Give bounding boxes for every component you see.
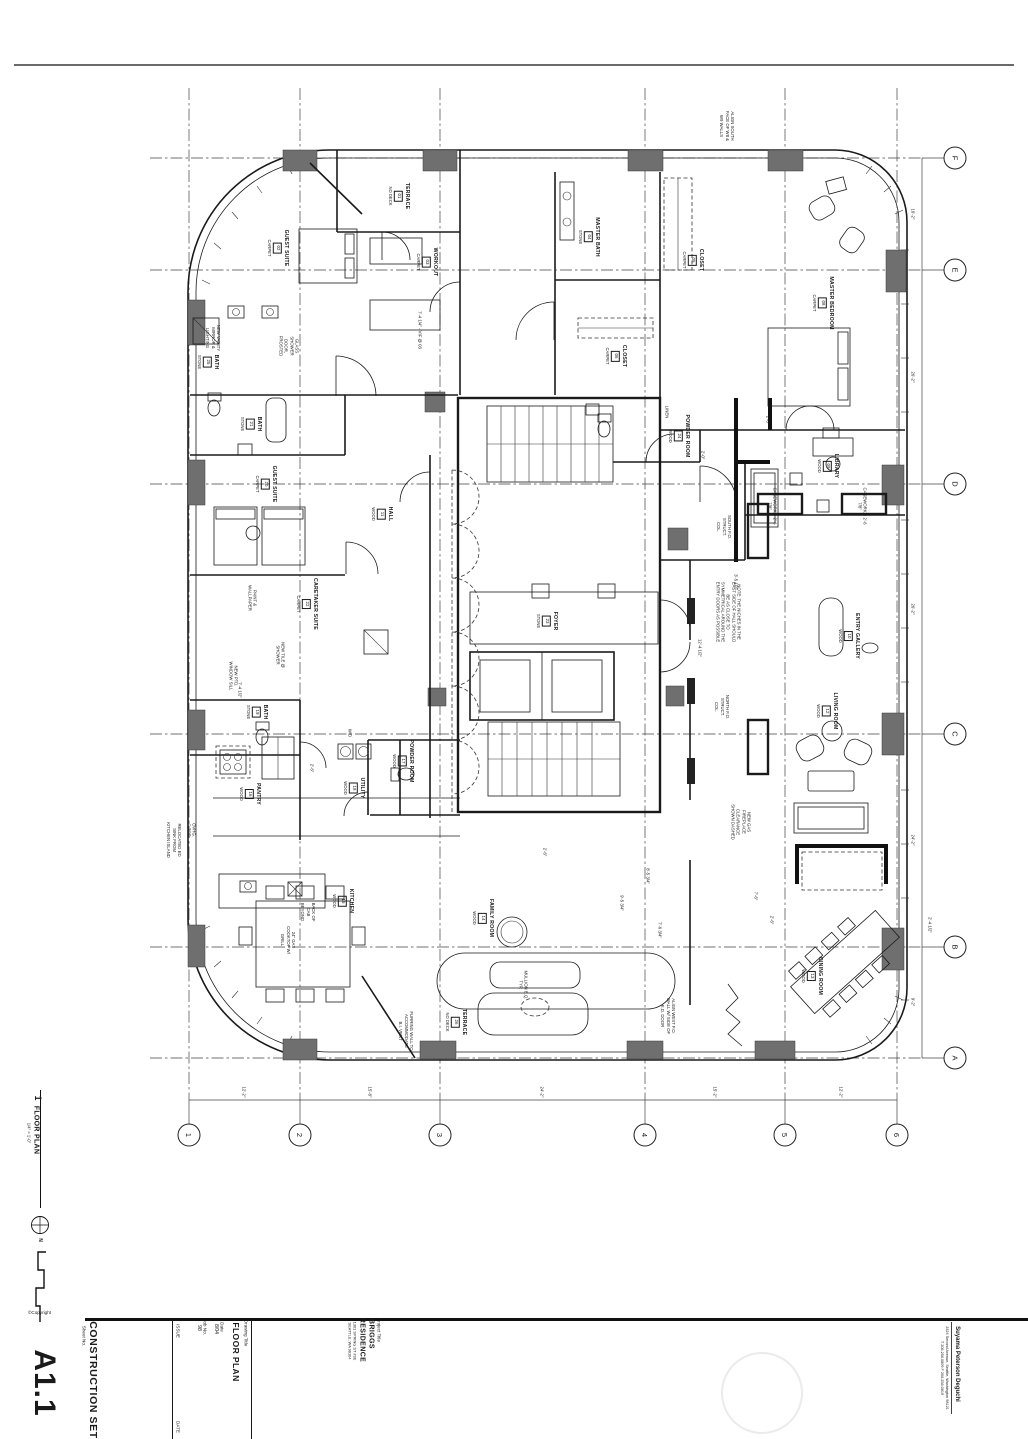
room-name: FOYER (552, 612, 558, 631)
room-label: DINING ROOM 13 WOOD (801, 957, 823, 995)
room-label: UTILITY 18 WOOD (343, 778, 365, 799)
room-finish: NO DECK (445, 1012, 450, 1031)
room-finish: WOOD (816, 704, 821, 718)
room-name: GUEST SUITE (283, 230, 289, 267)
dimension-text: 9'-2" (911, 998, 916, 1007)
set-title: CONSTRUCTION SET (87, 1321, 99, 1439)
plan-note: NORTH F.O. STRUCT. COL. (714, 693, 730, 721)
room-name: CARETAKER SUITE (312, 578, 318, 630)
copyright: ©Copyright (28, 1310, 51, 1315)
room-tag: 14 (478, 913, 487, 924)
grid-bubble-label: C (950, 731, 959, 736)
room-finish: NO DECK (388, 186, 393, 205)
room-finish: CARPET (812, 294, 817, 311)
room-tag: 12 (822, 706, 831, 717)
grid-bubble: D (944, 473, 967, 496)
room-tag: 13 (807, 971, 816, 982)
room-tag: 21 (246, 419, 255, 430)
room-tag: 24 (674, 431, 683, 442)
room-finish: WOOD (801, 969, 806, 983)
grid-bubble-label: D (950, 481, 959, 486)
room-label: MASTER BEDROOM 08 CARPET (812, 276, 834, 329)
plan-note: CASEWORK = 2'-6 7/8" (767, 484, 778, 528)
dimension-text: 12'-2" (242, 1087, 247, 1098)
watermark-circle (722, 1353, 802, 1433)
room-label: TERRACE 26 NO DECK (445, 1009, 467, 1035)
plan-scale: 1/4" = 1'-0" (27, 1123, 32, 1143)
room-finish: WOOD (392, 754, 397, 768)
room-label: WORKOUT 03 CARPET (416, 248, 438, 277)
dimension-text: 16'-2" (911, 209, 916, 220)
room-finish: STONE (578, 230, 583, 244)
room-finish: CARPET (296, 596, 301, 613)
room-finish: CARPET (267, 239, 272, 256)
room-finish: STONE (240, 417, 245, 431)
room-label: MASTER BATH 04 STONE (578, 217, 600, 257)
room-finish: WOOD (343, 781, 348, 795)
grid-bubble-label: F (951, 156, 960, 161)
grid-bubble-label: B (950, 944, 959, 949)
plan-note: OVHG. C-TOP (186, 821, 197, 839)
room-label: KITCHEN 15 WOOD (332, 889, 354, 913)
project-title-label: Project Title (377, 1318, 382, 1342)
room-tag: 25 (203, 357, 212, 368)
dimension-text: 26'-2" (911, 604, 916, 615)
dimension-text: 2'-4 1/2" (928, 917, 933, 933)
room-finish: WOOD (838, 629, 843, 643)
dimension-text: 26'-2" (911, 372, 916, 383)
room-tag: 16 (245, 789, 254, 800)
grid-bubble-label: 1 (184, 1133, 193, 1137)
plan-note: NEW GAS FIREPLACE CLEARANCE SHOWN DASHED (730, 802, 751, 842)
grid-bubble: B (944, 936, 967, 959)
room-name: BATH (262, 705, 268, 720)
plan-note: MULLION E.Q. TYP. (518, 970, 529, 1000)
plan-title-text: FLOOR PLAN (33, 1106, 40, 1155)
room-tag: 05 (688, 255, 697, 266)
room-finish: WOOD (472, 911, 477, 925)
room-tag: 02 (273, 243, 282, 254)
room-name: FAMILY ROOM (488, 899, 494, 937)
room-label: TERRACE 01 NO DECK (388, 183, 410, 209)
room-tag: 19 (252, 707, 261, 718)
dimension-text: 2'-0" (701, 451, 706, 460)
room-name: TERRACE (404, 183, 410, 209)
room-name: LIVING ROOM (832, 692, 838, 729)
grid-bubble: C (944, 723, 967, 746)
dimension-text: 12'-4 1/2" (698, 639, 703, 657)
plan-note: RELOCATED ED SINK FROM KITCHEN ISLAND (166, 822, 182, 858)
room-name: BATH (213, 355, 219, 370)
room-tag: 20 (261, 479, 270, 490)
room-tag: 22 (302, 599, 311, 610)
dimension-text: 24'-2" (911, 835, 916, 846)
room-tag: 01 (394, 191, 403, 202)
room-name: CLOSET (698, 249, 704, 271)
room-label: LIVING ROOM 12 WOOD (816, 692, 838, 729)
grid-bubble-label: A (950, 1055, 959, 1060)
floor-plan-linework (0, 0, 1028, 1439)
room-tag: 08 (818, 298, 827, 309)
room-finish: CARPET (416, 254, 421, 271)
plan-note: W/D (347, 726, 352, 740)
dimension-text: 7'-4 1/4" - VIF @ 03 (418, 311, 423, 349)
grid-bubble: 1 (178, 1124, 201, 1147)
room-tag: 26 (451, 1017, 460, 1028)
job-value: 98 (196, 1325, 202, 1331)
plan-note: 24" GAS COOKTOP W/ GRILL (280, 925, 296, 955)
room-tag: 23 (542, 616, 551, 627)
dimension-text: 7'-4 1/2" (238, 682, 243, 698)
room-tag: 04 (584, 232, 593, 243)
drawing-sheet: TERRACE 01 NO DECK GUEST SUITE 02 CARPET… (0, 0, 1028, 1439)
plan-note: PAINT & WALLPAPER (247, 583, 258, 613)
room-name: LIBRARY (833, 454, 839, 478)
room-tag: 15 (338, 896, 347, 907)
plan-note: NEW VANITY MIRROR & LIGHTING (205, 320, 221, 356)
room-name: MASTER BEDROOM (828, 276, 834, 329)
dimension-text: 15'-2" (713, 1087, 718, 1098)
room-tag: 03 (422, 257, 431, 268)
date-column-label: DATE (176, 1421, 181, 1433)
room-tag: 17 (398, 756, 407, 767)
room-label: CLOSET 05 CARPET (682, 249, 704, 271)
dimension-text: 12'-2" (839, 1087, 844, 1098)
room-label: POWDER ROOM 17 WOOD (392, 739, 414, 782)
project-address-2: SEATTLE, WA 98104 (348, 1323, 353, 1360)
dimension-text: 2'-6" (766, 416, 771, 425)
room-label: CLOSET 06 CARPET (605, 345, 627, 367)
room-finish: STONE (536, 614, 541, 628)
plan-note: CASEWORK = 2'-6 7/8" (857, 484, 868, 528)
project-address-1: 1301 SPRING ST #3E (353, 1322, 358, 1361)
grid-bubble-label: 6 (892, 1133, 901, 1137)
project-name-1: BRIGGS (368, 1319, 375, 1349)
room-tag: 11 (377, 509, 386, 520)
job-label: Job No. (203, 1319, 208, 1335)
room-label: PANTRY 16 WOOD (239, 783, 261, 805)
grid-bubble-label: 3 (435, 1133, 444, 1137)
firm-name: Suyama Peterson Deguchi (954, 1326, 960, 1402)
title-block-divider (251, 1320, 252, 1439)
room-tag: 09 (823, 461, 832, 472)
firm-phone: T 206.256.0809 F 206.256.0819 (940, 1341, 944, 1395)
room-label: BATH 19 STONE (246, 705, 268, 720)
room-name: WORKOUT (432, 248, 438, 277)
grid-bubble-label: 5 (780, 1133, 789, 1137)
plan-note: BACK OF CAB BEYOND (300, 899, 316, 925)
furniture (214, 177, 908, 1035)
room-finish: CARPET (255, 475, 260, 492)
room-finish: WOOD (239, 787, 244, 801)
room-label: FAMILY ROOM 14 WOOD (472, 899, 494, 937)
plan-note: ALIGN SOUTH FACE OF W8 & W9 WALLS (719, 109, 735, 143)
grid-bubble-label: E (950, 267, 959, 272)
room-finish: WOOD (817, 459, 822, 473)
issue-label: ISSUE (176, 1324, 181, 1338)
date-field-label: Date (220, 1322, 225, 1332)
room-finish: CARPET (605, 348, 610, 365)
plan-note: GLASS SHOWER DOOR, FROSTED (278, 329, 299, 363)
room-label: ENTRY GALLERY 10 WOOD (838, 613, 860, 659)
dimension-text: 7'-6" (754, 892, 759, 901)
date-value: 8/04 (213, 1324, 219, 1334)
plan-number: 1 (33, 1095, 43, 1100)
room-name: HALL (387, 507, 393, 522)
grid-bubble: 3 (429, 1124, 452, 1147)
room-label: BATH 25 STONE (197, 355, 219, 370)
title-block-divider (172, 1320, 173, 1439)
room-tag: 10 (844, 631, 853, 642)
room-label: GUEST SUITE 02 CARPET (267, 230, 289, 267)
sheet-number-label: Sheet No. (82, 1326, 87, 1346)
firm-address: 2324 Second Avenue, Seattle, Washington … (945, 1326, 949, 1410)
room-name: MASTER BATH (594, 217, 600, 257)
room-tag: 18 (349, 783, 358, 794)
room-name: GUEST SUITE (271, 466, 277, 503)
room-label: HALL 11 WOOD (371, 507, 393, 522)
room-name: BATH (256, 417, 262, 432)
room-name: UTILITY (359, 778, 365, 799)
project-name-2: RESIDENCE (359, 1318, 366, 1362)
title-block-rules (722, 1322, 952, 1433)
room-name: POWDER ROOM (684, 414, 690, 457)
room-tag: 06 (611, 351, 620, 362)
plan-note: SOUTH F.O. STRUCT. COL. (716, 513, 732, 541)
room-label: LIBRARY 09 WOOD (817, 454, 839, 478)
room-finish: CARPET (682, 252, 687, 269)
dimension-text: 8'-5 3/4" (646, 868, 651, 884)
room-finish: STONE (197, 355, 202, 369)
grid-bubble: 4 (634, 1124, 657, 1147)
room-finish: WOOD (668, 429, 673, 443)
north-label: N (37, 1238, 43, 1242)
plan-note: NEW TILE @ SHOWER (275, 640, 286, 670)
room-name: POWDER ROOM (408, 739, 414, 782)
grid-bubble: A (944, 1047, 967, 1070)
dimension-text: 15'-8" (368, 1087, 373, 1098)
dimension-text: 2'-6" (543, 848, 548, 857)
building-core (458, 398, 660, 812)
plan-note: ALIGN WEST F.O. WALL W/ SIDE OF E.D. DOO… (660, 996, 676, 1036)
plan-note: FURRING WALL TO ACCOMMODATE B.I. VENT (398, 1011, 414, 1051)
room-label: FOYER 23 STONE (536, 612, 558, 631)
drawing-title-label: Drawing Title (244, 1320, 249, 1347)
room-name: KITCHEN (348, 889, 354, 913)
room-label: CARETAKER SUITE 22 CARPET (296, 578, 318, 630)
grid-bubble-label: 4 (640, 1133, 649, 1137)
room-label: BATH 21 STONE (240, 417, 262, 432)
room-name: ENTRY GALLERY (854, 613, 860, 659)
drawing-title: FLOOR PLAN (231, 1322, 241, 1381)
room-label: POWDER ROOM 24 WOOD (668, 414, 690, 457)
room-label: GUEST SUITE 20 CARPET (255, 466, 277, 503)
grid-bubble: 2 (289, 1124, 312, 1147)
grid-bubble-label: 2 (295, 1133, 304, 1137)
room-name: PANTRY (255, 783, 261, 805)
sheet-number: A1.1 (27, 1349, 61, 1416)
plan-note: LINEN (664, 404, 669, 420)
grid-bubble: F (944, 147, 967, 170)
dimension-text: 3'-5 1/2" (734, 574, 739, 590)
room-name: TERRACE (461, 1009, 467, 1035)
dimension-text: 2'-6" (310, 764, 315, 773)
grid-bubble: 6 (886, 1124, 909, 1147)
dimension-text: 24'-2" (540, 1087, 545, 1098)
dimension-text: 2'-6" (770, 916, 775, 925)
door-swings (300, 232, 834, 816)
title-block-top-rule (85, 1318, 1028, 1321)
room-finish: STONE (246, 705, 251, 719)
grid-bubble: 5 (774, 1124, 797, 1147)
dimension-text: 7'-6 3/4" (658, 922, 663, 938)
room-name: CLOSET (621, 345, 627, 367)
grid-bubble: E (944, 259, 967, 282)
room-finish: WOOD (332, 894, 337, 908)
room-name: DINING ROOM (817, 957, 823, 995)
room-finish: WOOD (371, 507, 376, 521)
dimension-text: 9'-5 3/4" (620, 895, 625, 911)
